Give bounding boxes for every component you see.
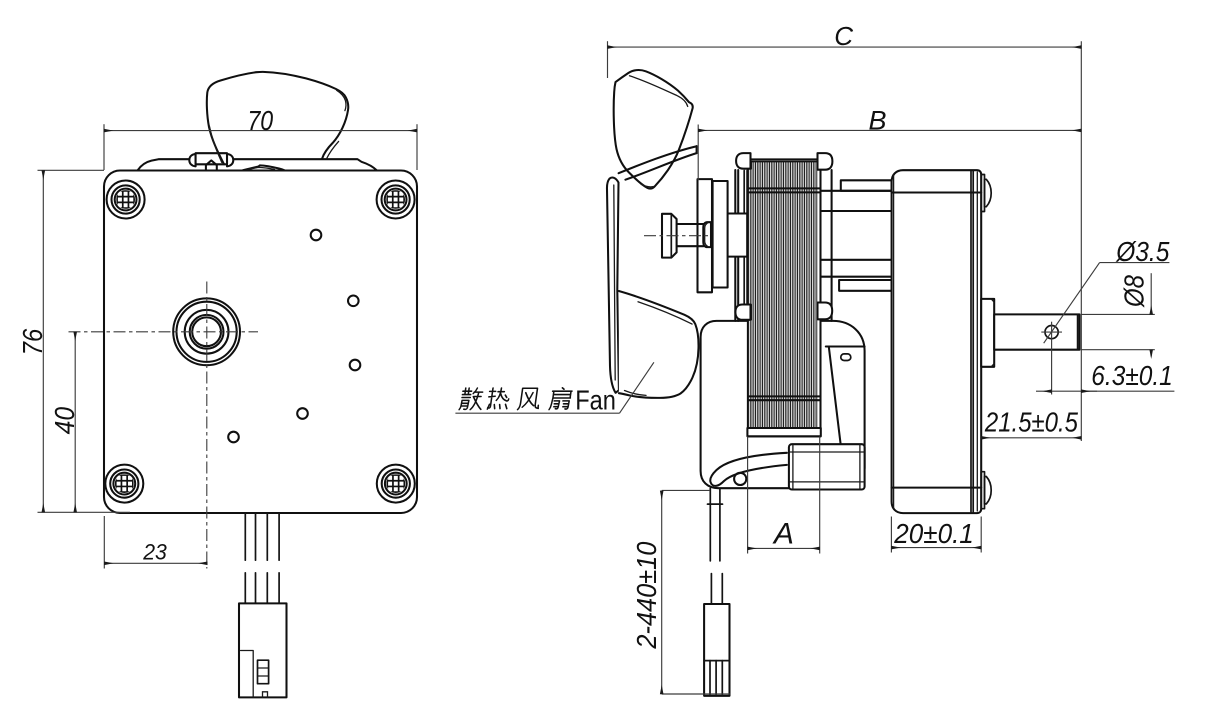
svg-text:70: 70 [247, 105, 273, 136]
svg-text:C: C [834, 21, 853, 51]
svg-text:Fan: Fan [575, 385, 616, 416]
svg-text:A: A [772, 518, 794, 551]
svg-text:40: 40 [49, 406, 80, 434]
svg-text:23: 23 [142, 539, 167, 564]
svg-text:Ø8: Ø8 [1119, 275, 1150, 308]
svg-text:6.3±0.1: 6.3±0.1 [1091, 360, 1173, 391]
svg-text:20±0.1: 20±0.1 [893, 518, 973, 549]
svg-text:76: 76 [17, 328, 48, 355]
svg-text:21.5±0.5: 21.5±0.5 [984, 407, 1078, 438]
svg-text:Ø3.5: Ø3.5 [1115, 236, 1169, 267]
svg-text:B: B [868, 105, 886, 135]
svg-text:2-440±10: 2-440±10 [631, 541, 662, 649]
